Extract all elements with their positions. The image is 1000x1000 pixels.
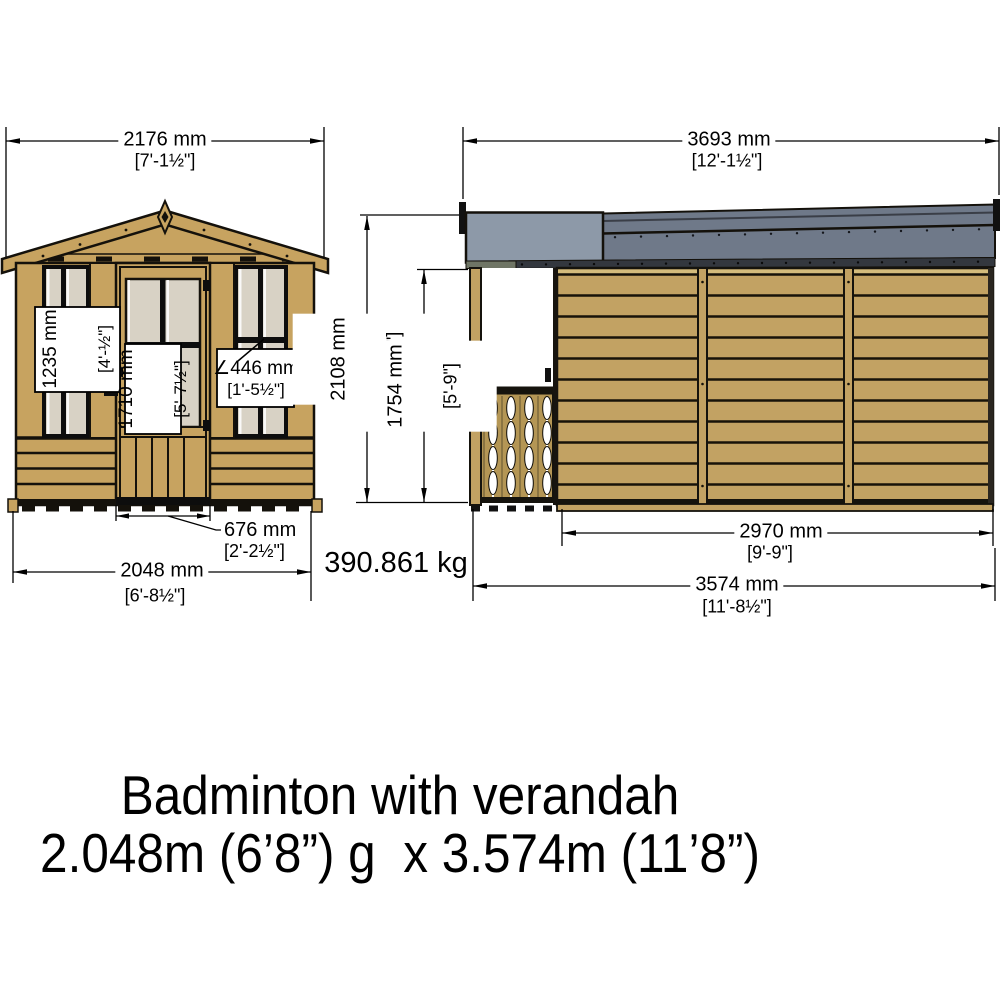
eaves-height-dim: 1754 mm [5'-9"] <box>350 340 497 431</box>
front-width-dim-value: 2176 mm <box>118 130 211 151</box>
floor-edge <box>557 504 993 511</box>
window-width-value: ∠446 mm <box>213 359 299 379</box>
eaves-height-value: 1754 mm <box>385 344 407 427</box>
eaves-height-imperial: [5'-9"] <box>441 344 460 427</box>
side-base-dim-value: 3574 mm <box>690 575 783 596</box>
door-height-imperial: [5'-7½"] <box>171 349 189 428</box>
front-width-dim-imperial: [7'-1½"] <box>135 152 196 171</box>
wall-length-dim-value: 2970 mm <box>734 522 827 543</box>
door-height-label: 1710 mm [5'-7½"] <box>82 349 224 428</box>
shed-dimension-drawing: 2176 mm [7'-1½"] 3693 mm [12'-1½"] 1235 … <box>0 0 1000 1000</box>
door-width-dim-value: 676 mm <box>224 520 296 541</box>
side-elevation <box>459 199 1000 512</box>
door-height-value: 1710 mm <box>116 349 137 428</box>
product-dimensions-title: 2.048m (6’8”) g x 3.574m (11’8”) <box>40 821 760 885</box>
product-title: Badminton with verandah <box>40 763 760 827</box>
verandah-feet <box>471 506 552 512</box>
verandah-roof <box>466 213 603 263</box>
front-base-dim-imperial: [6'-8½"] <box>125 587 186 606</box>
front-base-feet <box>22 506 299 512</box>
side-base-dim-imperial: [11'-8½"] <box>702 598 772 617</box>
window-height-value: 1235 mm <box>40 309 61 388</box>
wall-length-dim-imperial: [9'-9"] <box>747 544 793 563</box>
side-length-dim-value: 3693 mm <box>682 130 775 151</box>
window-width-imperial: [1'-5½"] <box>227 381 284 399</box>
barge-board-right <box>993 199 1000 231</box>
overall-height-value: 2108 mm <box>328 317 350 400</box>
weight-value: 390.861 kg <box>324 548 468 578</box>
side-length-dim-imperial: [12'-1½"] <box>692 152 763 171</box>
side-wall-cladding <box>557 268 994 505</box>
front-base-dim-value: 2048 mm <box>115 561 208 582</box>
door-width-dim-imperial: [2'-2½"] <box>224 542 285 561</box>
